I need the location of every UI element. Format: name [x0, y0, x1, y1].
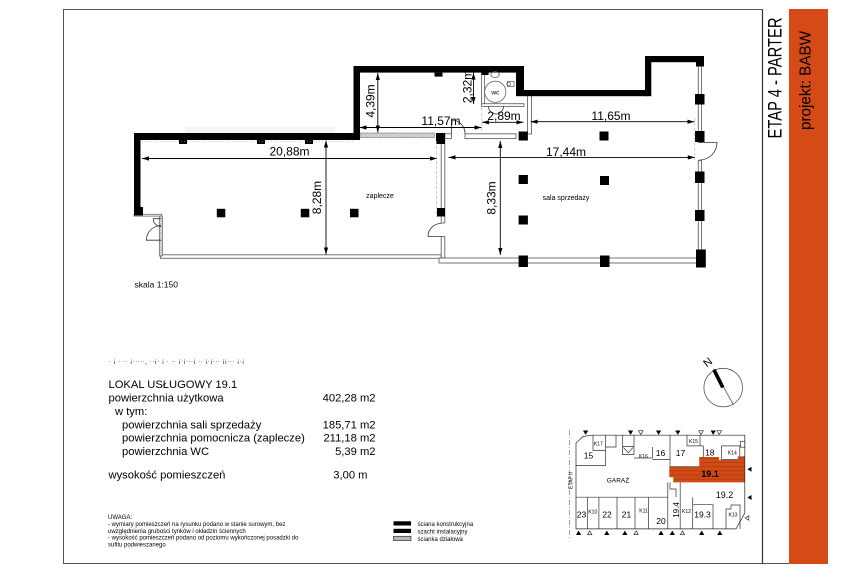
svg-text:UWAGA:: UWAGA:: [108, 515, 132, 521]
svg-text:15: 15: [584, 451, 594, 461]
svg-text:8,33m: 8,33m: [485, 181, 499, 214]
svg-text:ETAP 4 - PARTER: ETAP 4 - PARTER: [766, 18, 787, 139]
svg-text:- wysokość pomieszczeń podano: - wysokość pomieszczeń podano od poziomu…: [108, 536, 299, 542]
svg-text:3,00 m: 3,00 m: [333, 470, 367, 482]
svg-text:20,88m: 20,88m: [269, 145, 309, 159]
svg-text:w tym:: w tym:: [114, 406, 147, 418]
svg-text:ścianka działowa: ścianka działowa: [418, 537, 464, 543]
svg-text:19.3: 19.3: [694, 510, 711, 520]
svg-text:K16: K16: [639, 454, 648, 460]
svg-text:16: 16: [656, 448, 666, 458]
svg-text:sala sprzedaży: sala sprzedaży: [543, 195, 590, 202]
svg-text:szacht instalacyjny: szacht instalacyjny: [418, 530, 468, 536]
svg-text:185,71 m2: 185,71 m2: [323, 420, 376, 432]
svg-text:K11: K11: [639, 509, 648, 515]
svg-text:K10: K10: [588, 510, 597, 516]
svg-text:8,28m: 8,28m: [310, 181, 324, 214]
svg-text:ściana konstrukcyjna: ściana konstrukcyjna: [418, 522, 474, 528]
svg-text:18: 18: [705, 448, 715, 458]
svg-text:K13: K13: [729, 513, 738, 519]
svg-text:20: 20: [656, 516, 666, 526]
svg-text:19.2: 19.2: [716, 490, 734, 500]
svg-text:2,32m: 2,32m: [460, 70, 474, 103]
svg-text:22: 22: [602, 510, 612, 520]
svg-text:powierzchnia użytkowa: powierzchnia użytkowa: [109, 393, 225, 405]
svg-text:GARAŻ: GARAŻ: [607, 476, 629, 485]
svg-text:projekt: BABW: projekt: BABW: [798, 31, 815, 130]
svg-text:211,18 m2: 211,18 m2: [323, 433, 375, 445]
svg-text:K15: K15: [689, 439, 698, 445]
svg-text:powierzchnia WC: powierzchnia WC: [122, 446, 209, 458]
svg-text:powierzchnia pomocnicza (zaple: powierzchnia pomocnicza (zaplecze): [122, 433, 305, 445]
svg-text:skala 1:150: skala 1:150: [135, 280, 179, 290]
svg-text:ETAP II: ETAP II: [569, 472, 575, 489]
svg-text:19.4: 19.4: [672, 502, 681, 518]
svg-text:402,28 m2: 402,28 m2: [323, 393, 376, 405]
svg-text:wysokość pomieszczeń: wysokość pomieszczeń: [108, 470, 226, 482]
svg-text:K14: K14: [728, 451, 737, 457]
svg-text:K17: K17: [594, 442, 603, 448]
svg-text:- wymiary pomieszczeń na rysun: - wymiary pomieszczeń na rysunku podano …: [108, 522, 285, 528]
svg-text:LOKAL USŁUGOWY 19.1: LOKAL USŁUGOWY 19.1: [109, 379, 238, 391]
svg-text:K12: K12: [682, 509, 691, 515]
svg-text:5,39 m2: 5,39 m2: [335, 446, 375, 458]
svg-text:sufitu podwieszanego: sufitu podwieszanego: [108, 542, 166, 548]
svg-text:11,57m: 11,57m: [421, 114, 460, 128]
svg-text:· ¡ · ·· ¡·····¸ ··¡· ¡ · ·· ¡: · ¡ · ·· ¡·····¸ ··¡· ¡ · ·· ¡·¡···¡ ·· …: [109, 359, 245, 365]
svg-text:21: 21: [622, 510, 632, 520]
svg-text:19.1: 19.1: [701, 469, 719, 479]
svg-text:23: 23: [577, 510, 587, 520]
svg-text:17: 17: [676, 448, 686, 458]
svg-text:2,89m: 2,89m: [487, 109, 520, 123]
svg-text:uwzględnienia grubości tynków: uwzględnienia grubości tynków i okładzin…: [108, 529, 246, 535]
svg-text:11,65m: 11,65m: [591, 109, 630, 123]
svg-text:wc: wc: [490, 89, 500, 96]
svg-text:powierzchnia sali sprzedaży: powierzchnia sali sprzedaży: [122, 420, 262, 432]
svg-text:17,44m: 17,44m: [546, 145, 586, 159]
svg-text:4,39m: 4,39m: [363, 84, 377, 117]
svg-text:zaplecze: zaplecze: [366, 193, 394, 200]
